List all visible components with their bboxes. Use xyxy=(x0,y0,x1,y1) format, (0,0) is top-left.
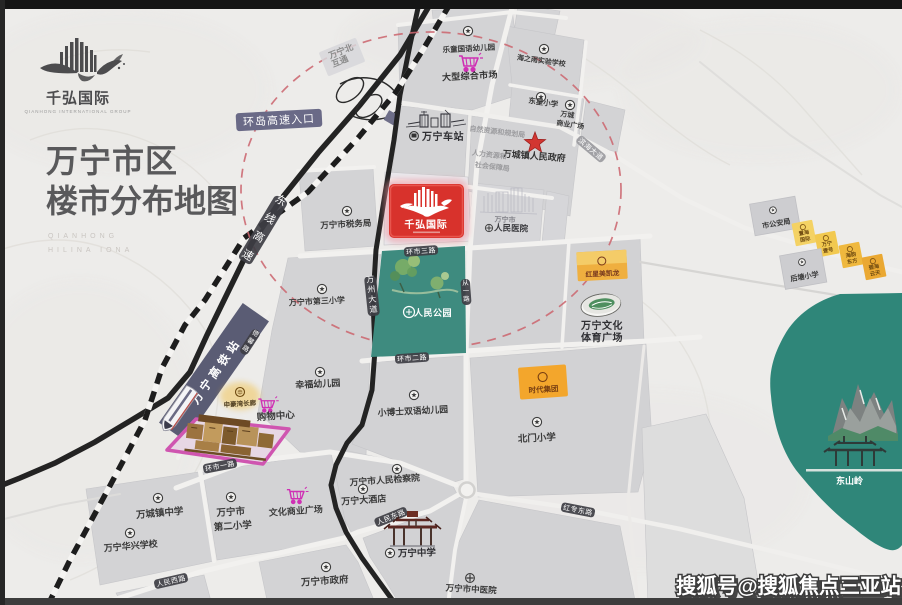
svg-text:州: 州 xyxy=(367,285,376,295)
svg-text:体育广场: 体育广场 xyxy=(581,331,623,344)
svg-text:千弘国际: 千弘国际 xyxy=(404,218,447,231)
svg-text:北门小学: 北门小学 xyxy=(518,431,557,445)
svg-text:大: 大 xyxy=(368,294,377,305)
svg-text:千弘国际: 千弘国际 xyxy=(46,90,110,107)
svg-text:QIANHONG: QIANHONG xyxy=(48,233,118,240)
svg-text:东山岭: 东山岭 xyxy=(836,475,863,486)
svg-text:申: 申 xyxy=(237,389,243,397)
svg-text:人民医院: 人民医院 xyxy=(494,222,529,233)
svg-text:万宁中学: 万宁中学 xyxy=(397,546,437,559)
svg-text:人民公园: 人民公园 xyxy=(413,307,452,318)
svg-text:万宁车站: 万宁车站 xyxy=(421,130,464,143)
svg-text:万宁市: 万宁市 xyxy=(215,505,246,519)
svg-text:万: 万 xyxy=(366,275,375,285)
svg-text:从: 从 xyxy=(462,280,469,287)
svg-text:道: 道 xyxy=(369,304,378,315)
svg-text:HILINA IONA: HILINA IONA xyxy=(48,247,133,254)
svg-text:万宁文化: 万宁文化 xyxy=(580,319,623,332)
svg-text:QIANHONG INTERNATIONAL GROUP: QIANHONG INTERNATIONAL GROUP xyxy=(24,109,131,114)
svg-text:一: 一 xyxy=(462,288,469,295)
svg-text:搜狐号@搜狐焦点三亚站: 搜狐号@搜狐焦点三亚站 xyxy=(676,574,901,598)
svg-text:万宁市区: 万宁市区 xyxy=(46,143,178,179)
svg-text:楼市分布地图: 楼市分布地图 xyxy=(46,183,238,219)
